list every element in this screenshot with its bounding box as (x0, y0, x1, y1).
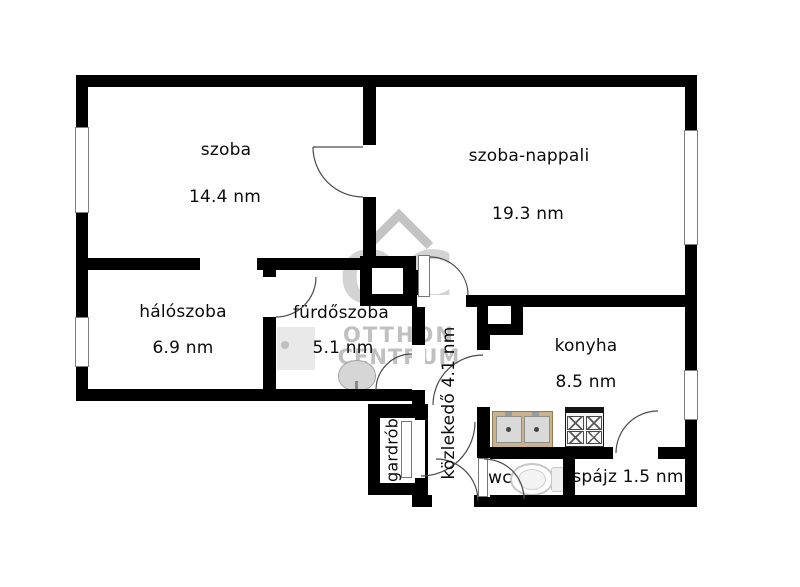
sink-tap-left (505, 412, 512, 416)
wall-konyha-bottom (477, 447, 697, 459)
door-arc-szoba (313, 147, 363, 197)
label-haloszoba-area: 6.9 nm (153, 338, 214, 358)
label-gardrob: gardrób (383, 418, 402, 482)
label-wc: wc (488, 468, 512, 488)
label-spajz: spájz 1.5 nm (572, 467, 683, 487)
vent-shaft-right-cavity (488, 306, 511, 324)
sink-drain-right (534, 427, 539, 432)
label-nappali-area: 19.3 nm (492, 204, 564, 224)
door-furdoszoba-kozlekedo (412, 345, 425, 390)
label-konyha-area: 8.5 nm (556, 372, 617, 392)
stove-burner (567, 431, 584, 444)
stove-burner (586, 431, 602, 444)
stove-top-band (565, 407, 604, 413)
door-gardrob (412, 420, 425, 478)
toilet-seat (518, 469, 546, 490)
window-szoba (75, 127, 89, 213)
label-szoba-area: 14.4 nm (189, 187, 261, 207)
stove-burner (567, 416, 584, 430)
window-nappali (684, 130, 698, 245)
wall-left-section-bottom (76, 389, 425, 401)
stove-burner (586, 416, 602, 430)
label-haloszoba-name: hálószoba (139, 302, 227, 322)
window-haloszoba (75, 317, 89, 367)
label-furdoszoba-name: fürdőszoba (293, 303, 389, 323)
wall-top (76, 75, 697, 87)
door-entrance (432, 495, 474, 507)
sink-tap-right (532, 412, 539, 416)
door-leaf-nappali (418, 255, 430, 297)
sink-drain-left (506, 427, 511, 432)
label-furdoszoba-area: 5.1 nm (313, 338, 374, 358)
label-nappali-name: szoba-nappali (469, 146, 590, 166)
window-konyha (684, 370, 698, 420)
floor-plan: OC OTTHON CENTRUM (0, 0, 800, 587)
vent-shaft-left-cavity (372, 268, 403, 294)
shower-drain (281, 341, 289, 349)
door-konyha-spajz (613, 447, 658, 459)
door-leaf-gardrob (401, 421, 412, 478)
door-leaf-wc (478, 458, 488, 497)
door-konyha-kozlekedo (477, 350, 490, 407)
label-szoba-name: szoba (201, 140, 251, 160)
door-haloszoba-furdoszoba (263, 277, 276, 317)
label-kozlekedo: közlekedő 4.1 nm (439, 326, 459, 479)
label-konyha-name: konyha (555, 336, 618, 356)
opening-szoba-haloszoba (200, 258, 257, 270)
door-szoba (363, 145, 376, 197)
